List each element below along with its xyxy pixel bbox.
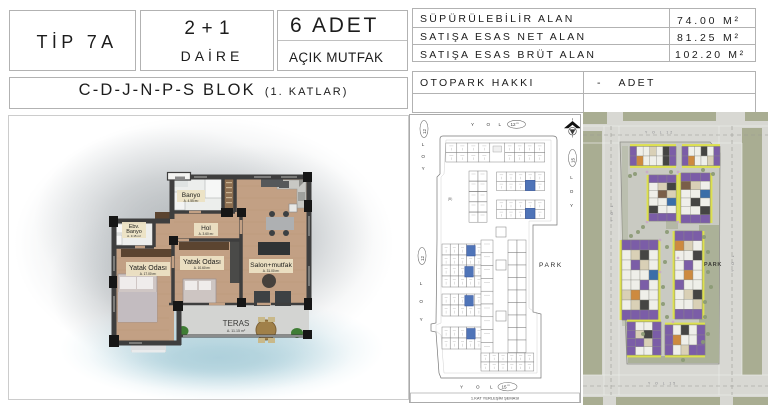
svg-text:TERAS: TERAS [223, 319, 250, 328]
svg-text:A. 3.15 m²: A. 3.15 m² [127, 234, 141, 238]
svg-text:L: L [490, 385, 493, 390]
svg-text:O: O [570, 189, 574, 194]
svg-text:(B): (B) [448, 197, 452, 201]
svg-text:1.KAT YERLEŞİM ŞEMASI: 1.KAT YERLEŞİM ŞEMASI [471, 396, 519, 401]
svg-text:PARK: PARK [704, 262, 722, 268]
svg-text:L: L [420, 281, 423, 286]
svg-text:Y O L: Y O L [731, 253, 735, 272]
svg-text:Y: Y [422, 166, 425, 171]
svg-text:12: 12 [420, 255, 425, 261]
svg-text:Hol: Hol [201, 225, 211, 232]
svg-text:O: O [419, 299, 423, 304]
svg-text:PARK: PARK [539, 262, 563, 269]
svg-text:15: 15 [502, 385, 508, 390]
svg-text:m: m [508, 383, 511, 387]
svg-text:A. 17.00 m²: A. 17.00 m² [140, 272, 156, 276]
svg-text:Y: Y [420, 317, 423, 322]
svg-text:Y: Y [460, 385, 463, 390]
svg-text:Yatak Odası: Yatak Odası [183, 259, 221, 266]
svg-text:O: O [421, 154, 425, 159]
svg-text:L: L [422, 142, 425, 147]
svg-text:A. 11.15 m²: A. 11.15 m² [227, 329, 246, 333]
svg-text:A. 4.55 m²: A. 4.55 m² [184, 199, 199, 203]
svg-text:12: 12 [511, 122, 517, 127]
svg-text:Y: Y [570, 203, 573, 208]
svg-text:A. 3.60 m²: A. 3.60 m² [199, 232, 214, 236]
svg-text:A. 31.00 m²: A. 31.00 m² [263, 269, 279, 273]
svg-text:12: 12 [422, 128, 427, 134]
svg-text:Yatak Odası: Yatak Odası [129, 265, 167, 272]
svg-text:Y O L 12: Y O L 12 [645, 131, 674, 135]
svg-text:Y: Y [471, 122, 474, 127]
svg-text:O: O [487, 122, 491, 127]
svg-text:m: m [516, 121, 519, 125]
svg-text:A. 10.60 m²: A. 10.60 m² [194, 266, 210, 270]
svg-text:Salon+mutfak: Salon+mutfak [250, 262, 292, 269]
svg-text:L: L [570, 175, 573, 180]
svg-text:15: 15 [571, 157, 576, 163]
svg-text:Y O L: Y O L [610, 203, 614, 222]
svg-text:L: L [499, 122, 502, 127]
svg-text:Y O L 15: Y O L 15 [648, 382, 677, 386]
svg-text:Banyo: Banyo [182, 192, 201, 199]
svg-text:O: O [476, 385, 480, 390]
